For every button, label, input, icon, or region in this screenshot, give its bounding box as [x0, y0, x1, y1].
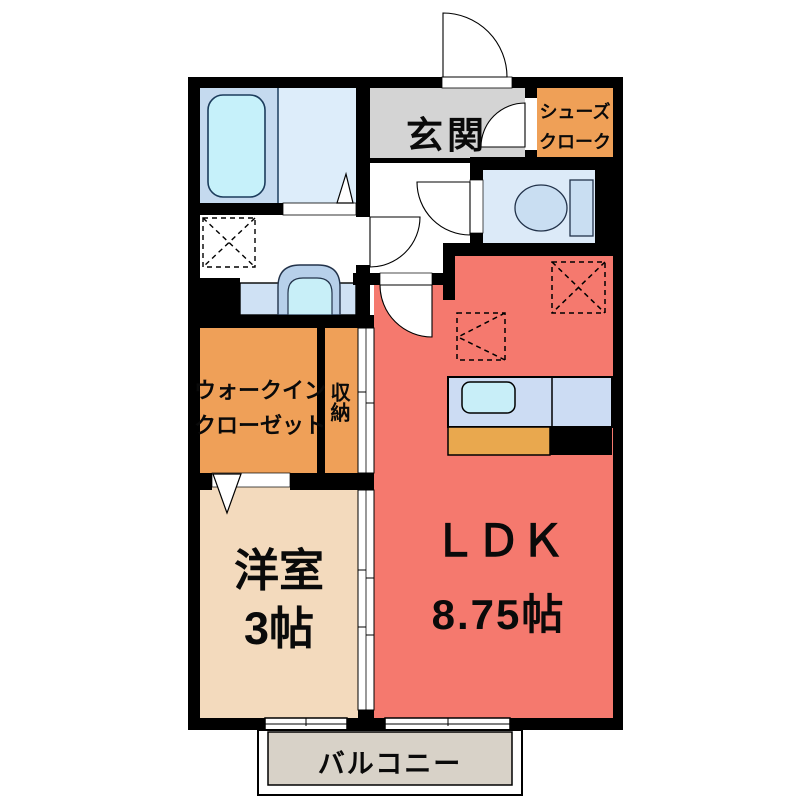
washroom-door-arc: [370, 217, 420, 267]
walk-in-closet-floor: [200, 328, 317, 473]
washbasin-bowl-icon: [288, 278, 332, 315]
ldk-floor: [455, 256, 613, 718]
floor-plan: 玄関 シューズ クローク ウォークイン クローゼット 収納 洋室 3帖 ＬＤＫ …: [0, 0, 800, 800]
kitchen-wall-block: [550, 427, 612, 455]
toilet-door-arc: [417, 182, 470, 235]
toilet-door-leaf: [470, 180, 483, 233]
floor-plan-drawing: [0, 0, 800, 800]
toilet-bowl-icon: [515, 185, 567, 231]
ldk-floor: [374, 285, 443, 718]
genkan-step-line: [370, 158, 470, 163]
bathroom-door-sill: [283, 203, 356, 215]
balcony-floor: [268, 732, 512, 785]
ldk-door-leaf: [380, 273, 432, 285]
western-room-window-icon: [265, 718, 347, 730]
shoes-cloak-floor: [537, 88, 613, 157]
entrance-door-sill: [442, 77, 512, 88]
western-room-floor: [200, 485, 358, 718]
washroom-door-opening: [356, 217, 370, 265]
shoes-cloak-door-opening: [525, 98, 537, 150]
bathtub-icon: [208, 95, 265, 197]
balcony: [258, 730, 522, 795]
storage-floor: [325, 328, 358, 473]
washing-machine-space: [203, 218, 255, 267]
kitchen-sink-icon: [462, 382, 515, 413]
ldk-window-icon: [385, 718, 510, 730]
toilet-tank-icon: [570, 180, 593, 236]
sliding-partition: [358, 328, 374, 710]
ldk-floor: [443, 300, 455, 718]
pipe-space: [595, 157, 613, 256]
kitchen-cabinet: [448, 427, 550, 455]
windows: [265, 718, 510, 730]
entrance-door-arc: [443, 13, 507, 77]
